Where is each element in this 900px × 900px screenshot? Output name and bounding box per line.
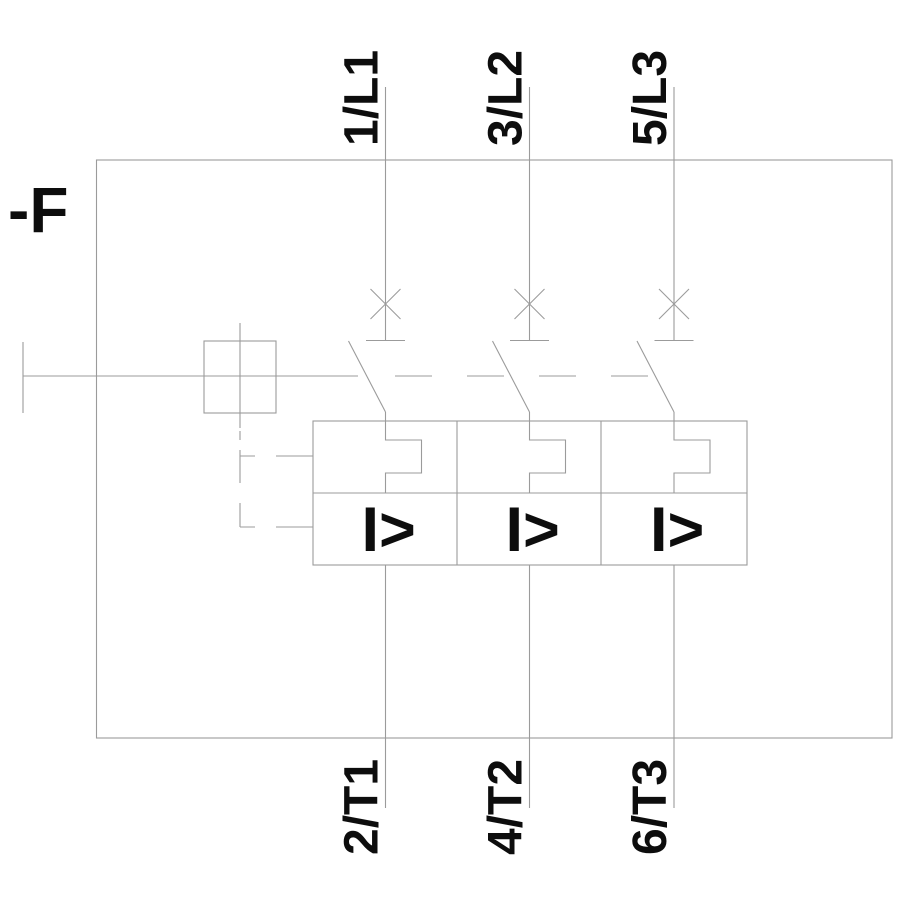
- terminal-label-bottom-1: 2/T1: [336, 759, 389, 855]
- circuit-diagram-page: -F 1/L1 3/L2 5/L3 2/T1 4/T2 6/T3 I> I> I…: [0, 0, 900, 900]
- pole-2: [493, 87, 566, 808]
- linework-layer: [23, 87, 892, 808]
- terminal-label-bottom-2: 4/T2: [480, 759, 533, 855]
- enclosure-border: [97, 160, 893, 738]
- magnetic-trip-symbol-1: I>: [362, 495, 416, 565]
- magnetic-trip-symbol-3: I>: [650, 495, 704, 565]
- device-designation-label: -F: [8, 174, 68, 246]
- terminal-label-top-2: 3/L2: [480, 50, 533, 146]
- thermal-overload-icon: [530, 412, 566, 493]
- circuit-breaker-diagram: -F 1/L1 3/L2 5/L3 2/T1 4/T2 6/T3 I> I> I…: [0, 0, 900, 900]
- pole-3: [637, 87, 710, 808]
- terminal-label-top-3: 5/L3: [624, 50, 677, 146]
- pole-1: [349, 87, 422, 808]
- thermal-overload-icon: [674, 412, 710, 493]
- magnetic-trip-symbol-2: I>: [506, 495, 560, 565]
- thermal-overload-icon: [386, 412, 422, 493]
- terminal-label-top-1: 1/L1: [336, 50, 389, 146]
- terminal-label-bottom-3: 6/T3: [624, 759, 677, 855]
- labels-layer: -F 1/L1 3/L2 5/L3 2/T1 4/T2 6/T3 I> I> I…: [8, 50, 704, 855]
